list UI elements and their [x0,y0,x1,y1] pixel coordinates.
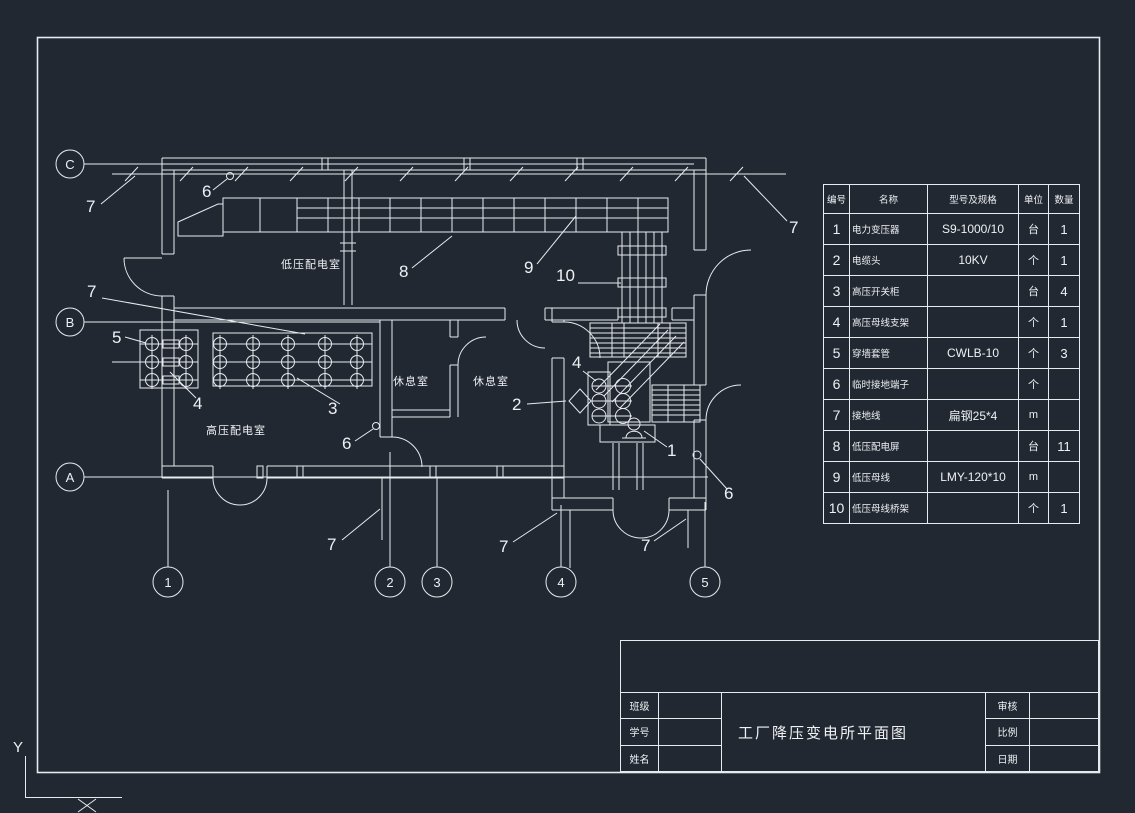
lv-panel-row [178,198,668,236]
callout-4-right: 4 [572,353,581,372]
table-cell-model: LMY-120*10 [928,462,1019,493]
table-cell-name: 高压开关柜 [850,276,928,307]
table-cell-unit: 个 [1019,245,1049,276]
table-cell-model [928,276,1019,307]
table-cell-model [928,431,1019,462]
table-cell-no: 2 [824,245,850,276]
callout-3: 3 [328,399,337,418]
grid-bubble-B: B [66,315,75,330]
hv-switchgear [140,330,372,389]
table-cell-qty [1049,462,1080,493]
title-block-value-name [659,746,722,772]
callout-6-top: 6 [202,182,211,201]
table-cell-qty [1049,369,1080,400]
table-cell-name: 穿墙套管 [850,338,928,369]
table-cell-name: 接地线 [850,400,928,431]
table-cell-unit: m [1019,462,1049,493]
callout-2: 2 [512,395,521,414]
callout-7-top-right: 7 [789,218,798,237]
table-cell-no: 4 [824,307,850,338]
table-cell-qty: 1 [1049,307,1080,338]
table-cell-no: 1 [824,214,850,245]
callout-1: 1 [667,441,676,460]
table-cell-name: 低压母线 [850,462,928,493]
callout-8: 8 [399,262,408,281]
grid-bubble-4: 4 [557,575,564,590]
ucs-y-label: Y [13,739,23,756]
table-cell-no: 10 [824,493,850,524]
title-block-label-scale: 比例 [986,719,1030,745]
title-block-label-class: 班级 [621,693,659,719]
table-cell-name: 电缆头 [850,245,928,276]
table-cell-qty: 1 [1049,493,1080,524]
title-block-label-date: 日期 [986,746,1030,772]
table-cell-name: 高压母线支架 [850,307,928,338]
callout-7-top-left: 7 [86,197,95,216]
grid-bubble-5: 5 [701,575,708,590]
callout-7-bottom-1: 7 [327,535,336,554]
grid-bubble-A: A [66,470,75,485]
table-cell-unit: 个 [1019,338,1049,369]
room-label-hv: 高压配电室 [206,423,266,437]
table-cell-no: 6 [824,369,850,400]
table-cell-no: 5 [824,338,850,369]
table-cell-no: 9 [824,462,850,493]
table-cell-unit: 个 [1019,369,1049,400]
table-header-name: 名称 [850,185,928,214]
title-block-value-student [659,719,722,745]
title-block-label-review: 审核 [986,693,1030,719]
table-cell-model: 扁钢25*4 [928,400,1019,431]
table-cell-unit: 台 [1019,276,1049,307]
cad-canvas: Y C B A 1 2 3 4 5 [0,0,1135,813]
title-block-value-scale [1030,719,1098,745]
table-cell-unit: m [1019,400,1049,431]
table-cell-qty: 4 [1049,276,1080,307]
table-header-no: 编号 [824,185,850,214]
grid-bubble-3: 3 [433,575,440,590]
table-cell-name: 低压配电屏 [850,431,928,462]
table-header-model: 型号及规格 [928,185,1019,214]
table-cell-no: 3 [824,276,850,307]
table-cell-qty: 1 [1049,214,1080,245]
drawing-title: 工厂降压变电所平面图 [722,693,986,772]
room-label-rest2: 休息室 [473,374,509,388]
transformer-bay [569,362,655,490]
callout-4-left: 4 [193,394,202,413]
callout-5: 5 [112,328,121,347]
callout-7-bottom-2: 7 [499,537,508,556]
callout-6-right: 6 [724,484,733,503]
table-cell-unit: 台 [1019,214,1049,245]
callout-6-mid: 6 [342,434,351,453]
grid-bubble-1: 1 [164,575,171,590]
table-cell-model: S9-1000/10 [928,214,1019,245]
title-block-value-date [1030,746,1098,772]
table-cell-unit: 个 [1019,307,1049,338]
table-cell-qty: 1 [1049,245,1080,276]
title-block-top-area [621,641,1098,693]
grid-axes: C B A 1 2 3 4 5 [56,150,720,597]
table-cell-no: 8 [824,431,850,462]
table-cell-unit: 台 [1019,431,1049,462]
table-cell-no: 7 [824,400,850,431]
callout-7-bottom-3: 7 [641,536,650,555]
table-cell-model [928,307,1019,338]
title-block-value-review [1030,693,1098,719]
table-cell-qty: 11 [1049,431,1080,462]
table-cell-model [928,369,1019,400]
table-cell-model: CWLB-10 [928,338,1019,369]
grid-bubble-C: C [65,157,74,172]
table-header-qty: 数量 [1049,185,1080,214]
table-header-unit: 单位 [1019,185,1049,214]
table-cell-name: 低压母线桥架 [850,493,928,524]
table-cell-name: 临时接地端子 [850,369,928,400]
table-cell-model: 10KV [928,245,1019,276]
table-cell-unit: 个 [1019,493,1049,524]
callout-7-left: 7 [87,282,96,301]
title-block-label-student: 学号 [621,719,659,745]
busbar-riser [590,232,700,422]
grid-bubble-2: 2 [386,575,393,590]
callout-10: 10 [556,266,575,285]
room-label-rest1: 休息室 [393,374,429,388]
title-block: 班级 工厂降压变电所平面图 审核 学号 比例 姓名 日期 [620,640,1099,772]
room-label-lv: 低压配电室 [281,257,341,271]
title-block-value-class [659,693,722,719]
ucs-icon: Y [13,739,122,812]
title-block-label-name: 姓名 [621,746,659,772]
table-cell-qty: 3 [1049,338,1080,369]
table-cell-name: 电力变压器 [850,214,928,245]
table-cell-model [928,493,1019,524]
parts-table: 编号 名称 型号及规格 单位 数量 1 电力变压器 S9-1000/10 台 1… [823,184,1080,524]
callout-9: 9 [524,258,533,277]
table-cell-qty [1049,400,1080,431]
